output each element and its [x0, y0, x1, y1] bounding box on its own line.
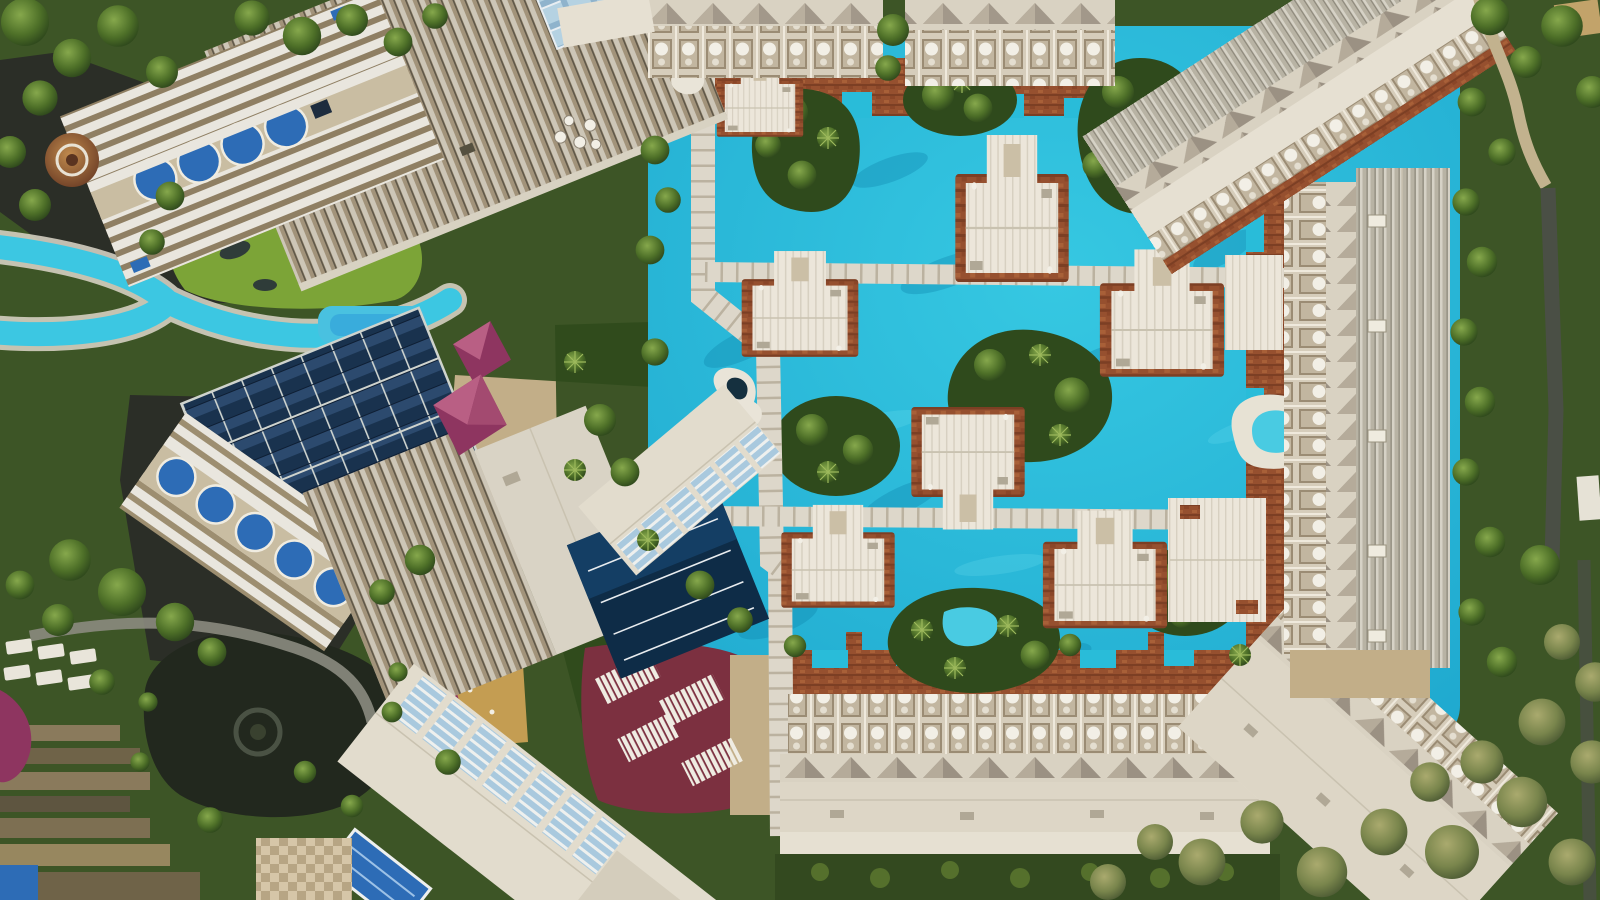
right-hotel-tower — [1284, 168, 1450, 698]
maroon-sundeck — [581, 643, 788, 815]
lagoon-villa — [1168, 498, 1266, 622]
checker-plaza — [256, 838, 352, 900]
island — [888, 588, 1060, 693]
small-pool-bottom-left — [0, 865, 38, 900]
island — [772, 396, 900, 496]
aerial-resort-photo — [0, 0, 1600, 900]
round-hut — [45, 133, 99, 187]
lagoon-villa — [1225, 255, 1283, 350]
small-white-building — [1576, 475, 1600, 520]
aerial-resort-scene — [0, 0, 1600, 900]
